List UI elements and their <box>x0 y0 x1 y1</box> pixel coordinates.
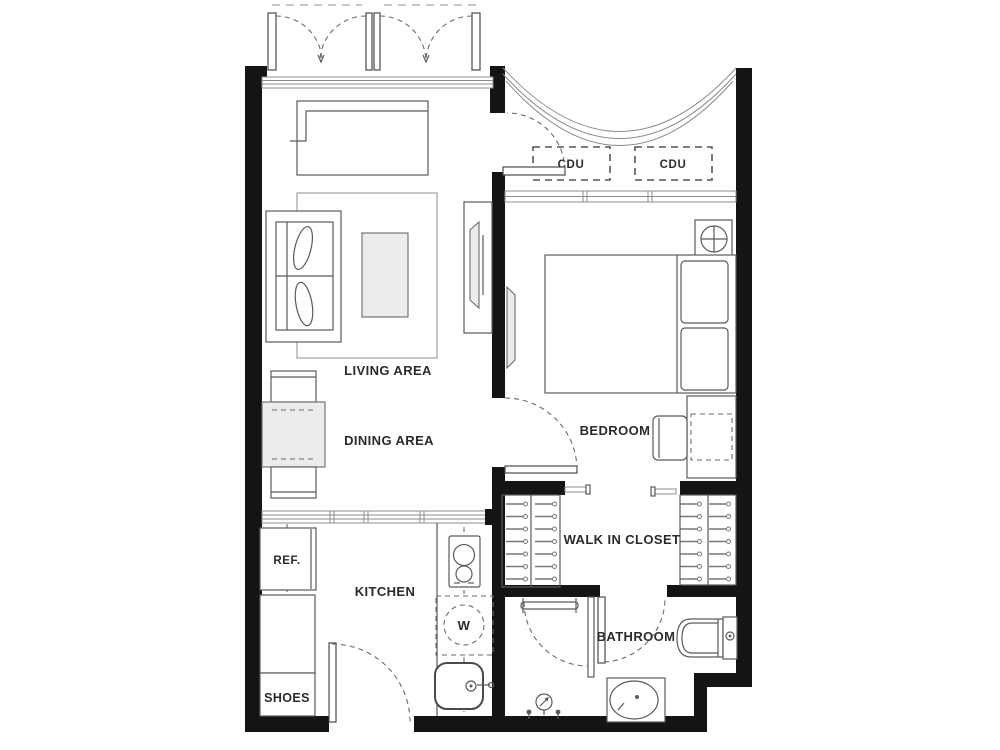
counter-band <box>262 509 494 525</box>
balcony-curve <box>506 81 733 146</box>
room-living: LIVING AREA <box>266 101 492 378</box>
cdu-balcony: CDU CDU <box>503 68 736 202</box>
room-label-bathroom: BATHROOM <box>597 629 676 644</box>
wall-notch-vertical <box>694 673 707 732</box>
room-closet: WALK IN CLOSET <box>502 485 736 587</box>
shower-door-swing <box>524 602 588 666</box>
washer-icon: W <box>436 596 493 655</box>
wall-bottom-left <box>245 716 329 732</box>
floor-plan-svg: CDU CDU LIVING AREA <box>0 0 1000 750</box>
shower-partition <box>588 597 594 677</box>
bedroom-door-leaf <box>505 466 577 473</box>
room-dining: DINING AREA <box>262 371 434 498</box>
media-cabinet <box>297 101 428 175</box>
door-swing-arc <box>380 16 426 62</box>
washer-label: W <box>458 618 471 633</box>
balcony-door-leaf <box>503 167 565 175</box>
dining-chair-bottom <box>271 467 316 498</box>
kitchen-cabinet <box>260 595 315 673</box>
dining-table <box>262 402 325 467</box>
wardrobe-right <box>680 495 736 585</box>
bed <box>545 255 736 393</box>
room-label-kitchen: KITCHEN <box>355 584 416 599</box>
sofa <box>266 211 341 342</box>
room-label-living: LIVING AREA <box>344 363 432 378</box>
french-door-jamb <box>366 13 372 70</box>
balcony-door-swing <box>507 113 565 171</box>
cdu-right-label: CDU <box>660 159 687 171</box>
entrance-door <box>329 643 410 722</box>
desk-chair <box>653 416 687 460</box>
door-swing-arrow <box>318 55 324 62</box>
entrance-door-swing <box>332 644 410 722</box>
wall-closet-top-left <box>505 481 565 495</box>
refrigerator: REF. <box>260 528 316 590</box>
refrigerator-label: REF. <box>273 555 300 567</box>
wall-bath-top-right <box>667 585 736 597</box>
room-label-bedroom: BEDROOM <box>580 423 651 438</box>
balcony-curve <box>503 74 736 139</box>
wall-divider-upper <box>492 172 505 398</box>
shoes-cabinet: SHOES <box>260 673 315 716</box>
towel-bar <box>521 598 578 613</box>
entrance-door-leaf <box>329 643 336 722</box>
balcony-french-doors <box>262 5 493 88</box>
wardrobe-left <box>502 495 560 587</box>
shoes-label: SHOES <box>264 691 310 705</box>
door-swing-arc <box>426 16 472 62</box>
coffee-table <box>362 233 408 317</box>
threshold-band <box>262 77 493 88</box>
wall-stub-balcony <box>490 66 505 113</box>
floor-plan-page: CDU CDU LIVING AREA <box>0 0 1000 750</box>
room-label-closet: WALK IN CLOSET <box>564 532 681 547</box>
desk <box>687 396 736 478</box>
tv-console <box>464 202 492 333</box>
pillow <box>681 261 728 323</box>
wall-closet-top-right <box>680 481 736 495</box>
closet-door-track <box>565 485 676 496</box>
nightstand <box>695 220 732 258</box>
room-bedroom: BEDROOM <box>505 220 736 478</box>
sink-icon <box>607 678 665 722</box>
french-door-jamb <box>268 13 276 70</box>
toilet-icon <box>677 617 737 659</box>
dining-chair-top <box>271 371 316 402</box>
pillow <box>681 328 728 390</box>
french-door-jamb <box>374 13 380 70</box>
shower-head-icon <box>527 694 561 719</box>
bedroom-door-swing <box>505 398 577 470</box>
kitchen-sink-icon <box>435 663 494 709</box>
door-swing-arc <box>320 16 366 62</box>
door-swing-arc <box>276 16 322 62</box>
living-tv-icon <box>470 222 479 308</box>
bedroom-tv-icon <box>507 287 515 368</box>
wall-right <box>736 68 752 686</box>
room-kitchen: REF. SHOES W <box>260 523 494 722</box>
room-label-dining: DINING AREA <box>344 433 434 448</box>
stove-icon <box>449 536 480 587</box>
french-door-jamb <box>472 13 480 70</box>
